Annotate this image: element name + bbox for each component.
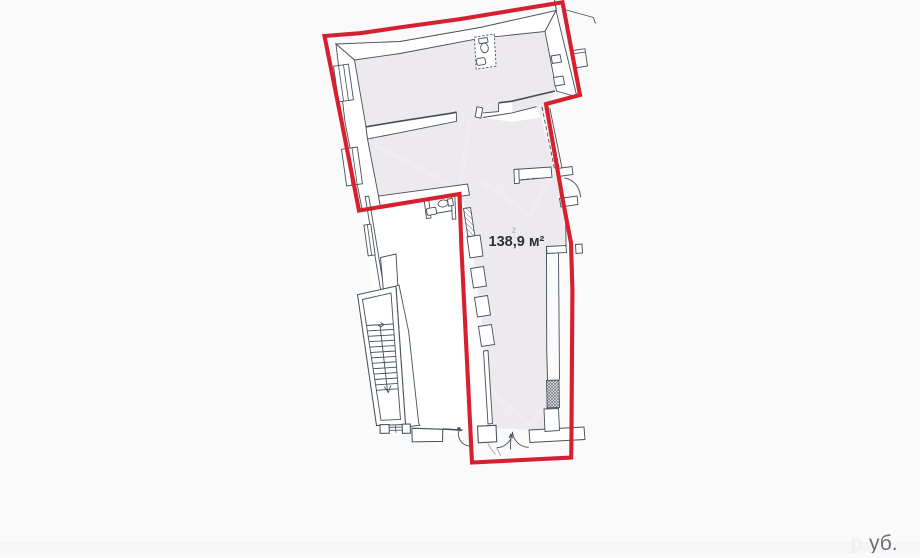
svg-text:уб.: уб.: [869, 532, 898, 553]
svg-text:р: р: [851, 532, 863, 553]
svg-text:2: 2: [512, 228, 516, 235]
svg-text:138,9 м²: 138,9 м²: [489, 234, 545, 250]
